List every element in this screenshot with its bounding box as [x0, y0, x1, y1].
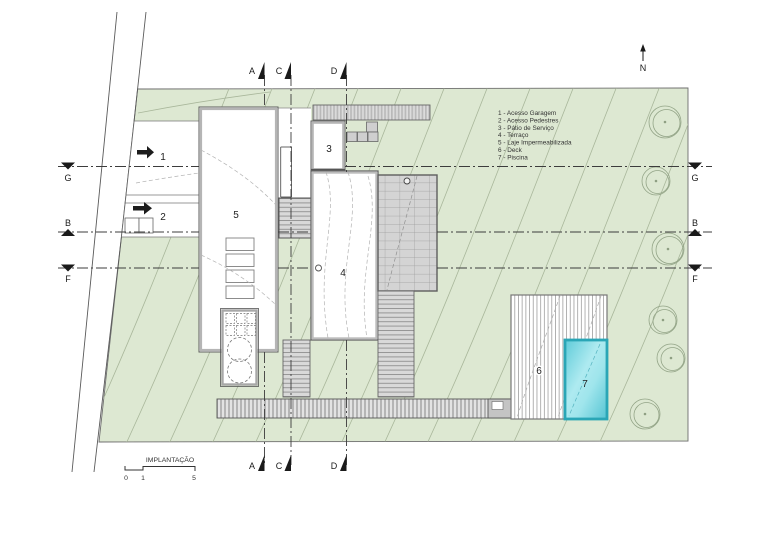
scale-tick: 5: [192, 475, 196, 482]
column-marker: [404, 178, 410, 184]
zone-label-garage-access: 1: [160, 152, 166, 163]
corridor-gap: [277, 108, 311, 238]
pergola-roof: [378, 175, 437, 291]
garden-steps-east: [378, 291, 414, 397]
site-plan-drawing: A C D A C D G G B B F F 1 2 3 4 5 6 7 1 …: [0, 0, 768, 543]
legend-item: 7 - Piscina: [498, 154, 528, 161]
column-marker: [316, 265, 322, 271]
terrace-area: [311, 171, 378, 340]
section-marker-d-bottom: D: [331, 461, 338, 471]
north-arrow-icon: [640, 44, 646, 52]
scale-title: IMPLANTAÇÃO: [146, 455, 194, 464]
zone-label-slab: 5: [233, 210, 239, 221]
entry-steps: [139, 218, 153, 233]
section-marker-b-right: B: [692, 218, 698, 228]
legend-item: 1 - Acesso Garagem: [498, 110, 556, 117]
zone-label-pool: 7: [582, 379, 588, 390]
section-marker-d-top: D: [331, 66, 338, 76]
zone-label-terrace: 4: [340, 268, 346, 279]
site-plan-page: A C D A C D G G B B F F 1 2 3 4 5 6 7 1 …: [0, 0, 768, 543]
legend-item: 5 - Laje Impermeabilizada: [498, 140, 572, 147]
north-label: N: [640, 63, 647, 73]
scale-bar: IMPLANTAÇÃO 0 1 5: [124, 455, 196, 482]
legend-item: 2 - Acesso Pedestres: [498, 117, 558, 124]
section-marker-a-top: A: [249, 66, 255, 76]
legend-item: 4 - Terraço: [498, 132, 529, 139]
main-building-slab: [199, 107, 278, 387]
zone-label-deck: 6: [536, 366, 542, 377]
section-marker-f-right: F: [692, 274, 698, 284]
section-marker-c-top: C: [276, 66, 283, 76]
garden-steps-west: [283, 340, 310, 397]
section-marker-g-right: G: [691, 173, 698, 183]
walkway-path: [217, 399, 511, 418]
legend-item: 6 - Deck: [498, 147, 523, 154]
zone-label-service-patio: 3: [326, 144, 332, 155]
scale-tick: 1: [141, 475, 145, 482]
section-marker-g-left: G: [64, 173, 71, 183]
section-marker-a-bottom: A: [249, 461, 255, 471]
section-marker-f-left: F: [65, 274, 71, 284]
water-tank-box: [221, 309, 259, 387]
legend-item: 3 - Pátio de Serviço: [498, 125, 554, 132]
section-marker-c-bottom: C: [276, 461, 283, 471]
north-arrow: N: [640, 44, 647, 73]
entry-steps: [125, 218, 139, 233]
scale-tick: 0: [124, 475, 128, 482]
section-marker-b-left: B: [65, 218, 71, 228]
zone-label-pedestrian-access: 2: [160, 212, 166, 223]
